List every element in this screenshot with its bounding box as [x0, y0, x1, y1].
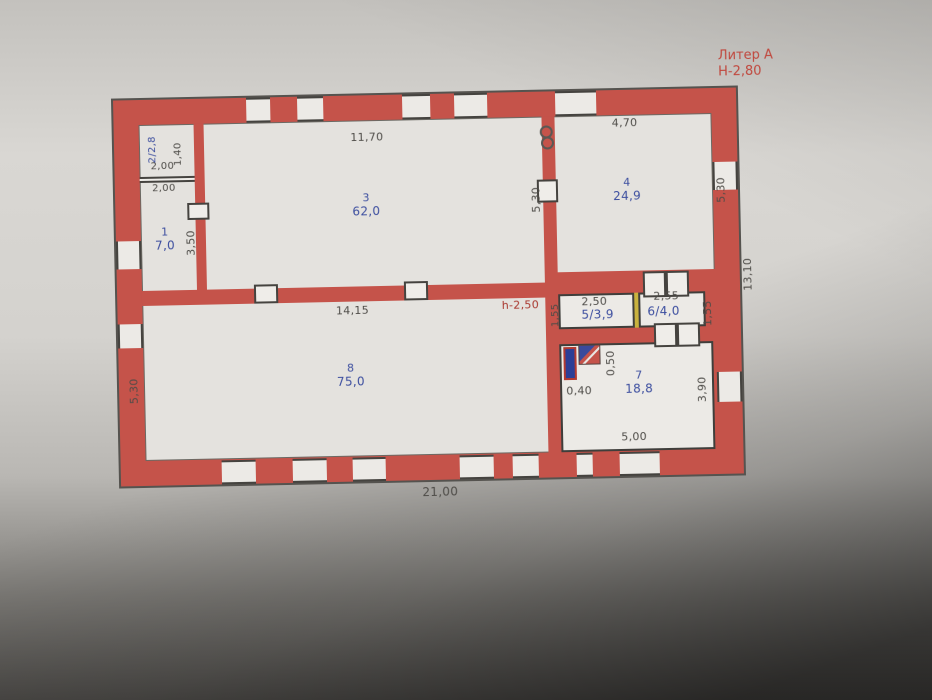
- dim-top-room4: 4,70: [612, 116, 638, 130]
- dim-room6-right: 1,55: [701, 300, 715, 326]
- window-icon: [619, 451, 659, 476]
- room-1-area: 7,0: [155, 239, 175, 253]
- window-icon: [677, 322, 700, 346]
- door-icon: [187, 203, 209, 220]
- window-icon: [297, 96, 324, 122]
- room-3-area: 62,0: [352, 204, 380, 218]
- room-8-area: 75,0: [337, 375, 365, 389]
- window-icon: [454, 93, 488, 119]
- floor-plan: 11,70 4,70 2,00 2,00 1,40 3,50 5,30 5,30…: [111, 85, 746, 490]
- dim-room7-b: 0,50: [604, 350, 618, 376]
- room-7-area: 18,8: [625, 382, 653, 396]
- dim-room2-width-b: 2,00: [152, 183, 176, 194]
- dim-room1-height: 3,50: [184, 230, 198, 256]
- dim-bottom-total: 21,00: [422, 484, 458, 499]
- room-5-label: 5/3,9: [581, 308, 614, 322]
- dim-room5-top: 2,50: [581, 295, 607, 309]
- dim-left-bottom: 5,30: [127, 378, 141, 404]
- dim-right-total: 13,10: [741, 258, 755, 291]
- room-7-label: 7 18,8: [625, 369, 653, 396]
- window-icon: [513, 454, 539, 479]
- dim-room7-bottom: 5,00: [621, 430, 647, 444]
- room-2-label: 2/2,8: [147, 136, 159, 163]
- room-4-label: 4 24,9: [613, 176, 641, 203]
- room-6-label: 6/4,0: [647, 305, 680, 319]
- room-8-label: 8 75,0: [337, 362, 365, 389]
- liter-annotation: Литер А Н-2,80: [718, 48, 774, 81]
- room-4-area: 24,9: [613, 189, 641, 203]
- photo-paper-sheet: Литер А Н-2,80: [0, 0, 932, 700]
- window-icon: [353, 457, 386, 482]
- room-1-label: 1 7,0: [155, 226, 176, 253]
- window-icon: [116, 241, 142, 270]
- window-icon: [222, 460, 256, 485]
- window-icon: [460, 455, 494, 480]
- room-3-label: 3 62,0: [352, 192, 380, 219]
- ceiling-height-label: h-2,50: [502, 298, 539, 312]
- dim-room8-top: 14,15: [336, 304, 369, 318]
- dim-room7-a: 0,40: [566, 384, 592, 398]
- dim-room5-left: 1,55: [550, 303, 561, 327]
- window-icon: [293, 458, 327, 483]
- window-icon: [246, 97, 271, 122]
- dim-right-top: 5,30: [714, 177, 728, 203]
- window-icon: [654, 323, 677, 347]
- fixture-hatch-icon: [578, 344, 600, 364]
- window-icon: [717, 371, 743, 402]
- building-height-label: Н-2,80: [718, 64, 773, 81]
- liter-label: Литер А: [718, 48, 773, 65]
- window-icon: [555, 90, 597, 116]
- fixture-blue-icon: [563, 347, 577, 380]
- dim-room2-height: 1,40: [172, 142, 183, 166]
- dim-room7-right: 3,90: [695, 376, 709, 402]
- door-icon: [254, 284, 278, 303]
- dim-room6-top: 2,55: [653, 289, 679, 303]
- dim-top-room3: 11,70: [350, 130, 383, 144]
- window-icon: [576, 453, 592, 477]
- window-icon: [402, 94, 431, 120]
- window-icon: [118, 324, 143, 349]
- door-icon: [404, 281, 428, 300]
- dim-wall34: 5,30: [529, 187, 543, 213]
